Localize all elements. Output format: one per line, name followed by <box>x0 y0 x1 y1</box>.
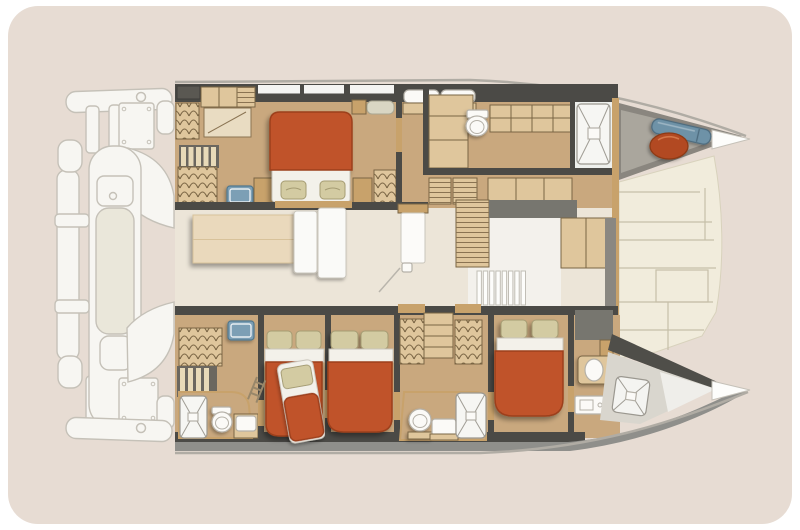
bath-counter <box>429 95 473 168</box>
pillow <box>331 331 358 349</box>
transom-panel-top <box>119 103 154 149</box>
shower-wall <box>570 84 575 174</box>
side-wall <box>605 218 616 308</box>
pillow <box>281 181 306 199</box>
cabinet <box>398 304 425 313</box>
louver-cabinet <box>456 200 489 267</box>
platform-hatch <box>97 176 133 206</box>
door-opening <box>396 118 402 152</box>
page <box>0 0 800 530</box>
pillow <box>361 331 388 349</box>
wardrobe <box>455 320 482 364</box>
headboard-shelf <box>275 201 352 208</box>
sink <box>234 414 258 438</box>
bath-wall <box>423 84 429 174</box>
wardrobe <box>176 103 199 139</box>
duvet <box>270 112 352 170</box>
partition-wall <box>568 315 574 438</box>
door-opening <box>488 392 494 420</box>
door-handle <box>402 263 412 272</box>
toilet <box>212 407 232 432</box>
desk <box>204 108 251 137</box>
pillow <box>296 331 321 349</box>
nightstand <box>254 178 273 205</box>
hull-windows <box>258 85 394 94</box>
sink <box>430 419 458 440</box>
davit-post <box>86 106 99 153</box>
gallery-wall <box>423 168 618 175</box>
transom-panel-bottom <box>119 378 158 424</box>
toilet <box>408 409 432 439</box>
mattress <box>329 349 393 362</box>
coachroof-wall <box>575 310 613 340</box>
galley-counter <box>490 105 572 132</box>
cabinet <box>455 304 481 313</box>
catamaran-floor-plan <box>0 0 800 530</box>
duvet <box>495 351 563 416</box>
foredeck-surface <box>619 156 722 358</box>
door-opening <box>568 386 574 412</box>
double-bed <box>270 112 352 202</box>
wardrobe <box>400 319 424 364</box>
stern-tab <box>157 101 174 134</box>
shelf <box>352 100 366 114</box>
stairs <box>179 145 219 168</box>
shower <box>180 396 207 438</box>
pillow <box>501 320 527 338</box>
stern-platforms <box>55 88 174 442</box>
pillow <box>532 320 558 338</box>
side-deck-band <box>175 442 570 451</box>
wardrobe <box>179 328 222 366</box>
transom-step <box>55 300 89 313</box>
deck-hatch <box>177 86 200 99</box>
toilet <box>466 110 488 136</box>
shelf-unit <box>424 313 453 358</box>
dining-table <box>193 215 294 263</box>
wardrobe <box>178 167 217 205</box>
shower <box>612 376 651 416</box>
duvet <box>328 362 392 432</box>
step-block <box>58 140 82 172</box>
tender-platform <box>96 208 134 334</box>
fender <box>650 133 688 159</box>
seat-cushion <box>367 101 394 114</box>
foredeck <box>619 156 722 358</box>
mattress <box>497 338 563 351</box>
door-opening <box>394 392 400 420</box>
pillow <box>267 331 292 349</box>
door-opening <box>258 400 264 426</box>
nightstand <box>353 178 372 205</box>
salon <box>175 200 618 315</box>
sofa <box>294 208 346 278</box>
shower <box>456 393 486 438</box>
salon-bottom-wall <box>175 306 618 315</box>
aft-crossbeam-bottom <box>66 417 173 442</box>
coachroof-wall <box>489 200 577 218</box>
galley-lower-counter <box>488 178 572 203</box>
mattress <box>265 349 324 362</box>
transom-strip <box>57 170 79 360</box>
shower <box>575 102 612 168</box>
transom-step <box>55 214 89 227</box>
wardrobe <box>374 170 396 206</box>
partition-wall <box>396 102 402 208</box>
pillow <box>320 181 345 199</box>
foredeck-door-panel <box>561 218 612 268</box>
bow-tip-top <box>712 130 750 149</box>
aft-cabinet-row <box>201 87 255 107</box>
vanity-sink <box>228 321 254 340</box>
step-block <box>58 356 82 388</box>
